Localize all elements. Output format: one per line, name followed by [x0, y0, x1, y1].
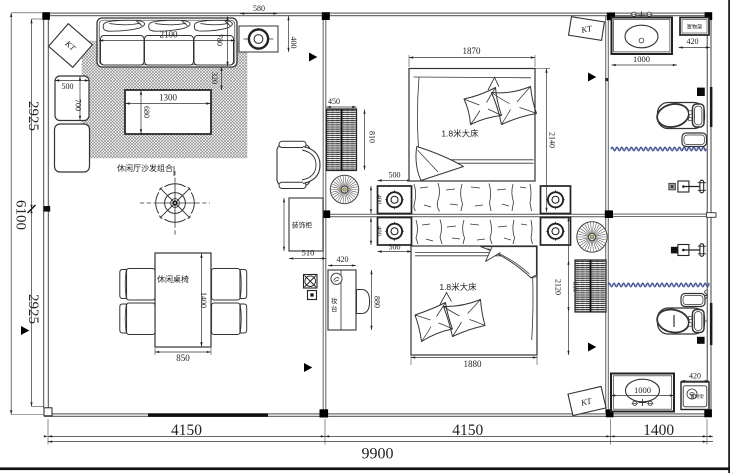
svg-text:780: 780 [215, 34, 224, 46]
svg-text:台: 台 [331, 304, 338, 313]
svg-text:1000: 1000 [633, 54, 650, 64]
svg-text:2925: 2925 [25, 294, 41, 324]
svg-text:510: 510 [302, 248, 315, 258]
svg-text:500: 500 [389, 171, 401, 180]
svg-text:1.8米大床: 1.8米大床 [441, 129, 479, 139]
svg-text:400: 400 [376, 195, 383, 205]
svg-text:880: 880 [373, 296, 382, 308]
svg-text:置物架: 置物架 [687, 23, 703, 31]
svg-text:420: 420 [337, 255, 349, 264]
svg-text:2100: 2100 [160, 30, 179, 40]
svg-text:置物架: 置物架 [690, 393, 704, 400]
svg-text:320: 320 [210, 72, 219, 84]
svg-text:4150: 4150 [452, 422, 483, 439]
svg-text:400: 400 [289, 37, 298, 49]
svg-text:580: 580 [253, 4, 265, 13]
svg-text:420: 420 [689, 372, 701, 381]
svg-text:妆: 妆 [331, 296, 338, 305]
svg-text:420: 420 [687, 37, 699, 46]
svg-text:700: 700 [74, 99, 83, 111]
svg-text:1870: 1870 [463, 46, 482, 56]
svg-text:1300: 1300 [159, 93, 178, 103]
svg-text:休闲厅沙发组合: 休闲厅沙发组合 [117, 163, 173, 173]
svg-text:500: 500 [389, 243, 401, 252]
svg-text:2120: 2120 [554, 279, 563, 295]
svg-text:6100: 6100 [13, 200, 29, 230]
svg-text:500: 500 [62, 82, 74, 91]
svg-text:1880: 1880 [464, 359, 483, 369]
svg-text:1.8米大床: 1.8米大床 [439, 282, 477, 292]
svg-text:680: 680 [142, 106, 151, 118]
svg-text:9900: 9900 [362, 446, 394, 463]
svg-text:850: 850 [176, 353, 190, 363]
svg-text:2140: 2140 [548, 132, 557, 148]
svg-text:1400: 1400 [643, 422, 674, 439]
svg-text:1400: 1400 [199, 292, 208, 308]
svg-text:810: 810 [368, 131, 377, 143]
svg-text:休闲桌椅: 休闲桌椅 [157, 274, 189, 284]
svg-text:装饰柜: 装饰柜 [292, 221, 313, 230]
svg-text:1000: 1000 [634, 385, 651, 395]
svg-text:4150: 4150 [171, 422, 202, 439]
svg-text:400: 400 [376, 226, 383, 236]
svg-text:2925: 2925 [25, 101, 41, 131]
svg-text:810: 810 [571, 282, 578, 292]
svg-text:450: 450 [328, 97, 340, 106]
